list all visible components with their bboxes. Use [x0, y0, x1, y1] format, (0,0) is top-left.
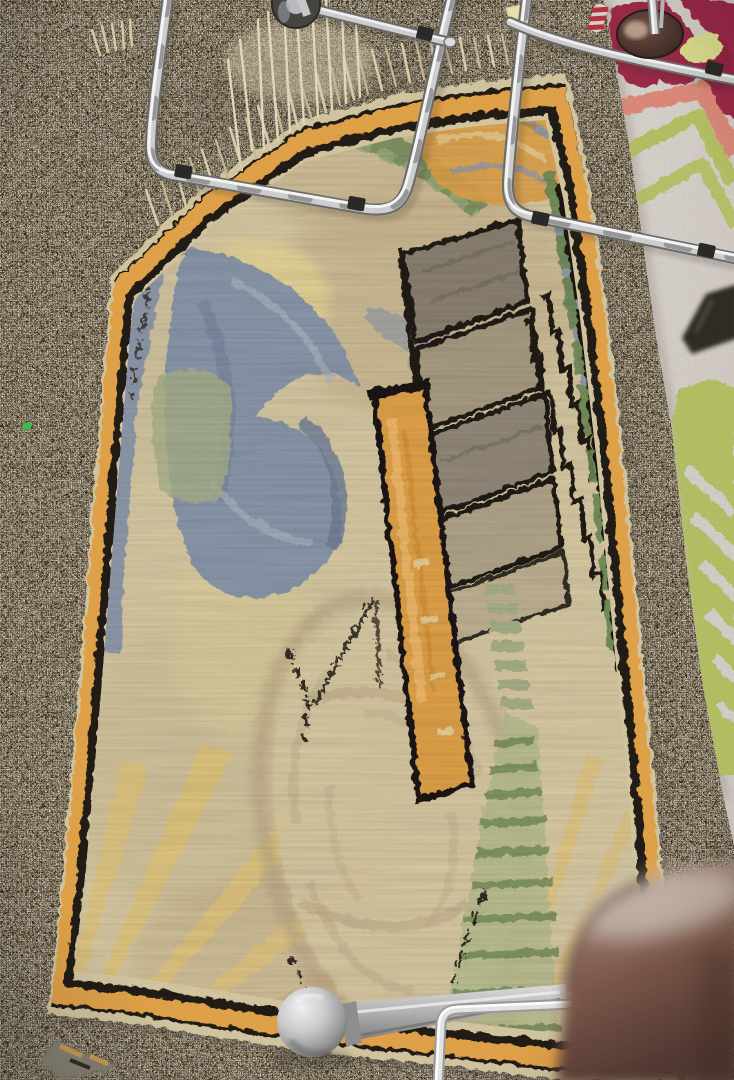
vignette [0, 0, 734, 1080]
studio-floor-photo [0, 0, 734, 1080]
